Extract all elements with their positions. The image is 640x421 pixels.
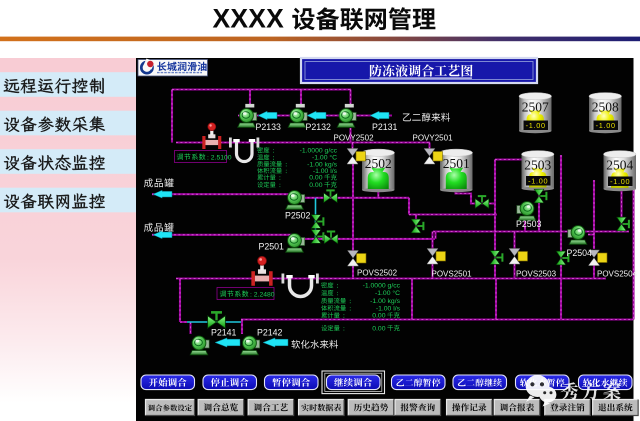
svg-text:-1.00: -1.00 [610,177,630,186]
svg-text:XXXX: XXXX [213,3,285,33]
svg-text:2504: 2504 [606,158,633,173]
svg-text:POVY2502: POVY2502 [334,134,375,143]
svg-text:2501: 2501 [443,156,470,171]
svg-text:-1.00 kg/s: -1.00 kg/s [370,298,400,305]
svg-text:-1.00: -1.00 [526,121,546,130]
svg-text:POVS2502: POVS2502 [357,269,398,278]
svg-text:P2503: P2503 [516,219,542,229]
svg-text:POVS2504: POVS2504 [597,270,638,279]
svg-text:-1.0000 g/cc: -1.0000 g/cc [363,283,401,290]
svg-text:P2504: P2504 [567,248,593,258]
svg-text:0.00: 0.00 [372,313,385,320]
svg-text:0.00: 0.00 [309,182,322,189]
svg-text:P2131: P2131 [372,122,398,132]
svg-text:: 2.2480: : 2.2480 [250,291,275,298]
svg-text:0.00: 0.00 [309,175,322,182]
svg-text:-1.00 l/s: -1.00 l/s [376,305,401,312]
svg-text:P2141: P2141 [211,328,237,338]
svg-text:0.00: 0.00 [372,325,385,332]
svg-text:-1.00: -1.00 [596,121,616,130]
svg-text:POVS2501: POVS2501 [432,270,473,279]
svg-text:: 2.5100: : 2.5100 [207,154,232,161]
svg-text:2507: 2507 [522,100,549,115]
svg-text:-1.00 °C: -1.00 °C [375,289,400,297]
svg-text:2503: 2503 [524,158,551,173]
svg-text:P2502: P2502 [285,211,311,221]
svg-text:-1.00: -1.00 [528,177,548,186]
svg-text:P2133: P2133 [256,122,282,132]
svg-text:2508: 2508 [592,100,619,115]
svg-text:-1.0000 g/cc: -1.0000 g/cc [300,148,338,155]
svg-text:P2132: P2132 [306,122,332,132]
svg-text:P2501: P2501 [259,242,285,252]
svg-text:POVS2503: POVS2503 [516,270,557,279]
svg-text:2502: 2502 [365,156,392,171]
svg-text:POVY2501: POVY2501 [413,134,454,143]
svg-text:P2142: P2142 [257,328,283,338]
